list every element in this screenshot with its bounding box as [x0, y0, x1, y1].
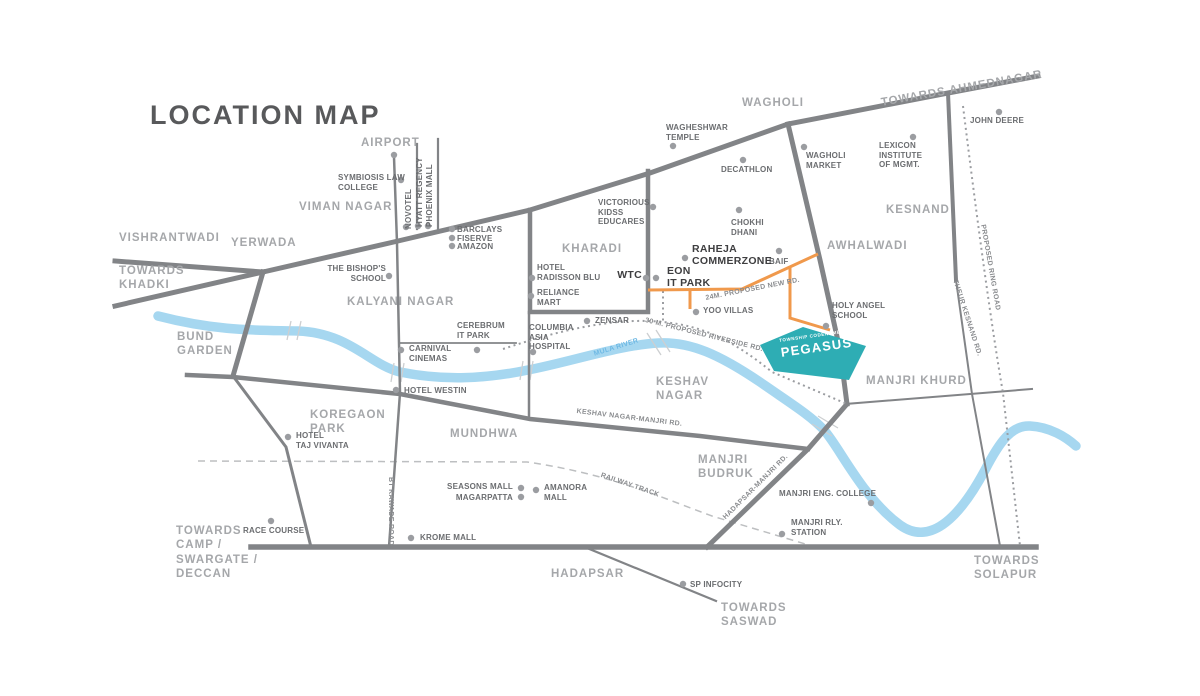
- label-sp-infocity: SP INFOCITY: [690, 580, 742, 590]
- poi-dot-cerebrum-it-park: [474, 347, 480, 353]
- label-airport: AIRPORT: [361, 136, 420, 150]
- page-title: LOCATION MAP: [150, 100, 380, 131]
- poi-dot-airport: [391, 152, 397, 158]
- poi-dot-raheja-commerzone: [682, 255, 688, 261]
- label-vishrantwadi: VISHRANTWADI: [119, 231, 220, 245]
- label-amazon: AMAZON: [457, 242, 493, 252]
- label-race-course: RACE COURSE: [243, 526, 304, 536]
- poi-dot-the-bishops-school: [386, 273, 392, 279]
- poi-dot-yoo-villas: [693, 309, 699, 315]
- label-bund-garden: BUND GARDEN: [177, 330, 233, 359]
- label-seasons-mall: SEASONS MALL: [447, 482, 513, 492]
- label-kalyani-nagar: KALYANI NAGAR: [347, 295, 454, 309]
- label-victorious-kidss-educares: VICTORIOUS KIDSS EDUCARES: [598, 198, 650, 227]
- poi-dot-amanora-mall: [533, 487, 539, 493]
- poi-dot-seasons-mall: [518, 485, 524, 491]
- label-decathlon: DECATHLON: [721, 165, 772, 175]
- poi-dot-victorious-kidss-educares: [650, 204, 656, 210]
- label-the-bishops-school: THE BISHOP'S SCHOOL: [327, 264, 386, 283]
- label-zensar: ZENSAR: [595, 316, 629, 326]
- label-kharadi: KHARADI: [562, 242, 622, 256]
- label-phoenix-mall: PHOENIX MALL: [425, 164, 435, 227]
- label-yoo-villas: YOO VILLAS: [703, 306, 753, 316]
- poi-dot-john-deere: [996, 109, 1002, 115]
- label-chokhi-dhani: CHOKHI DHANI: [731, 218, 764, 237]
- label-wagholi: WAGHOLI: [742, 96, 804, 110]
- label-lexicon-institute: LEXICON INSTITUTE OF MGMT.: [879, 141, 922, 170]
- label-viman-nagar: VIMAN NAGAR: [299, 200, 392, 214]
- road-kesnand: [948, 93, 956, 280]
- label-bt-kawade-road: BT KAWADE ROAD: [387, 477, 394, 546]
- location-map: LOCATION MAP VISHRANTWADITOWARDS KHADKIY…: [0, 0, 1200, 696]
- label-hotel-radisson-blu: HOTEL RADISSON BLU: [537, 263, 600, 282]
- label-wagholi-market: WAGHOLI MARKET: [806, 151, 846, 170]
- road-yerwada-bund-garden: [233, 272, 263, 376]
- label-manjri-eng-college: MANJRI ENG. COLLEGE: [779, 489, 876, 499]
- label-holy-angel-school: HOLY ANGEL SCHOOL: [832, 301, 885, 320]
- poi-dot-race-course: [268, 518, 274, 524]
- label-amanora-mall: AMANORA MALL: [544, 483, 587, 502]
- label-wagheshwar-temple: WAGHESHWAR TEMPLE: [666, 123, 728, 142]
- label-hadapsar: HADAPSAR: [551, 567, 624, 581]
- label-hotel-taj-vivanta: HOTEL TAJ VIVANTA: [296, 431, 349, 450]
- label-keshav-nagar: KESHAV NAGAR: [656, 375, 709, 404]
- label-manjri-rly-station: MANJRI RLY. STATION: [791, 518, 843, 537]
- label-eon-it-park: EON IT PARK: [667, 265, 710, 289]
- poi-dot-magarpatta: [518, 494, 524, 500]
- poi-dot-barclays: [449, 226, 455, 232]
- poi-dot-holy-angel-school: [823, 323, 829, 329]
- poi-dot-carnival-cinemas: [398, 347, 404, 353]
- poi-dot-manjri-eng-college: [868, 500, 874, 506]
- poi-dot-hotel-radisson-blu: [529, 275, 535, 281]
- label-hyatt-regency: HYATT REGENCY: [415, 157, 425, 227]
- poi-dot-hotel-westin: [393, 387, 399, 393]
- poi-dot-baif: [776, 248, 782, 254]
- poi-dot-sp-infocity: [680, 581, 686, 587]
- poi-dot-amazon: [449, 243, 455, 249]
- poi-dot-krome-mall: [408, 535, 414, 541]
- label-raheja-commerzone: RAHEJA COMMERZONE: [692, 243, 772, 267]
- poi-dot-lexicon-institute: [910, 134, 916, 140]
- poi-dot-fiserve: [449, 235, 455, 241]
- poi-dot-wtc-0: [643, 275, 649, 281]
- label-symbiosis-law-college: SYMBIOSIS LAW COLLEGE: [338, 173, 405, 192]
- label-towards-khadki: TOWARDS KHADKI: [119, 264, 185, 293]
- poi-dot-reliance-mart: [528, 293, 534, 299]
- poi-dot-wagholi-market: [801, 144, 807, 150]
- label-reliance-mart: RELIANCE MART: [537, 288, 580, 307]
- label-manjri-khurd: MANJRI KHURD: [866, 374, 967, 388]
- poi-dot-hotel-taj-vivanta: [285, 434, 291, 440]
- label-yerwada: YERWADA: [231, 236, 297, 250]
- label-wtc: WTC: [617, 269, 642, 281]
- label-manjri-budruk: MANJRI BUDRUK: [698, 453, 754, 482]
- label-columbia-asia-hospital: COLUMBIA ASIA HOSPITAL: [529, 323, 574, 352]
- label-john-deere: JOHN DEERE: [970, 116, 1024, 126]
- label-towards-saswad: TOWARDS SASWAD: [721, 601, 787, 630]
- poi-dot-wtc-1: [653, 275, 659, 281]
- label-hotel-westin: HOTEL WESTIN: [404, 386, 467, 396]
- label-carnival-cinemas: CARNIVAL CINEMAS: [409, 344, 451, 363]
- label-novotel: NOVOTEL: [404, 189, 414, 229]
- label-magarpatta: MAGARPATTA: [456, 493, 513, 503]
- poi-dot-decathlon: [740, 157, 746, 163]
- label-towards-solapur: TOWARDS SOLAPUR: [974, 554, 1040, 583]
- poi-dot-wagheshwar-temple: [670, 143, 676, 149]
- label-kesnand: KESNAND: [886, 203, 950, 217]
- poi-dot-zensar: [584, 318, 590, 324]
- poi-dot-manjri-rly-station: [779, 531, 785, 537]
- poi-dot-chokhi-dhani: [736, 207, 742, 213]
- label-awhalwadi: AWHALWADI: [827, 239, 908, 253]
- label-cerebrum-it-park: CEREBRUM IT PARK: [457, 321, 505, 340]
- label-krome-mall: KROME MALL: [420, 533, 476, 543]
- label-mundhwa: MUNDHWA: [450, 427, 518, 441]
